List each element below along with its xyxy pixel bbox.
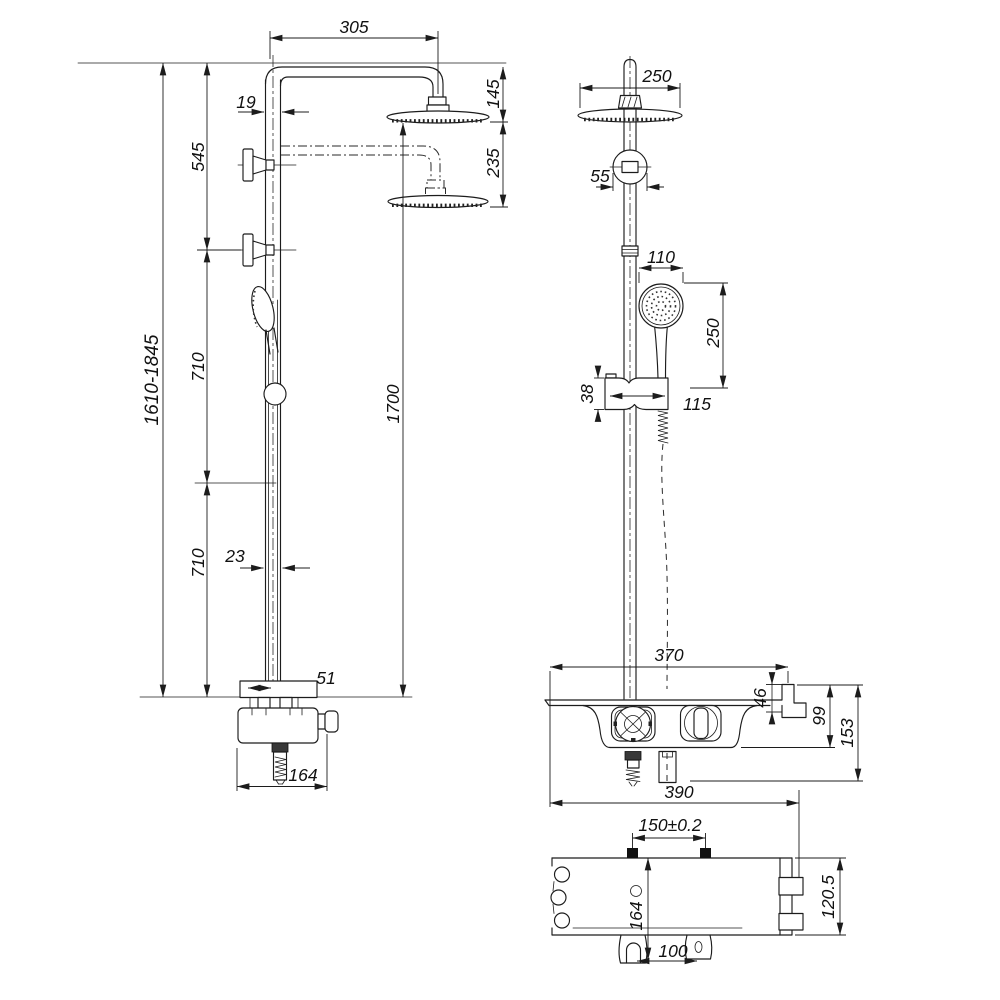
dim-body-height-label: 99 [809, 706, 829, 726]
dim-overall-width-label: 390 [664, 782, 693, 802]
overhead-arm-lower [281, 146, 488, 208]
dim-hook-height-label: 46 [750, 688, 770, 708]
valve-front-view: 370 46 99 153 390 [545, 645, 863, 877]
dim-slider-height-label: 38 [577, 384, 597, 404]
temperature-knob [612, 707, 656, 742]
dim-spout-offset-label: 51 [316, 668, 335, 688]
dim-mid-segment-label: 710 [188, 352, 208, 381]
mount-clip-right [700, 848, 711, 858]
clip-rail-edge [551, 858, 570, 935]
dim-arm-reach-label: 305 [339, 17, 368, 37]
dim-height-range-label: 1610-1845 [142, 334, 163, 425]
shower-system-technical-drawing: 305 19 545 1610-1845 145 235 710 710 23 [0, 0, 1000, 1000]
pipe-joint [622, 246, 638, 256]
dim-overhead-dia-label: 250 [641, 66, 671, 86]
side-view-dimensions: 305 19 545 1610-1845 145 235 710 710 23 [142, 17, 508, 791]
hinge-tab-lower [779, 914, 803, 931]
riser-pipe-side [266, 55, 281, 692]
wall-hook-bracket [782, 685, 806, 718]
dim-lower-pipe-label: 23 [224, 546, 245, 566]
wall-escutcheon [610, 150, 651, 184]
front-view: 250 55 110 250 38 115 [577, 56, 728, 699]
valve-bottom-view: 150±0.2 120.5 164 100 [551, 815, 846, 963]
dim-total-height-label: 153 [837, 718, 857, 747]
hinge-tab-upper [779, 878, 803, 896]
handshower-front [639, 284, 683, 388]
dim-bracket-span-label: 545 [188, 142, 208, 171]
wall-bracket-lower [238, 234, 296, 266]
spout-collar-front [625, 752, 641, 761]
bottom-view-dimensions: 150±0.2 120.5 164 100 [626, 815, 846, 961]
dim-upper-pipe-label: 19 [236, 92, 256, 112]
mount-clip-left [627, 848, 638, 858]
dim-mount-spacing-label: 150±0.2 [638, 815, 701, 835]
pilot-hole [631, 886, 642, 897]
dim-valve-width-label: 370 [654, 645, 683, 665]
slider-tab [606, 374, 616, 378]
dim-lower-segment-label: 710 [188, 548, 208, 577]
side-view: 305 19 545 1610-1845 145 235 710 710 23 [78, 17, 508, 791]
dim-handshower-dia-label: 110 [647, 247, 675, 267]
dim-overall-depth-label: 120.5 [818, 875, 838, 919]
side-handle-knob [325, 711, 338, 732]
dim-valve-depth-side-label: 164 [288, 765, 317, 785]
dim-head-drop-label: 145 [483, 79, 503, 108]
handshower-side [248, 284, 279, 354]
valve-front-dimensions: 370 46 99 153 390 [550, 645, 863, 877]
slider-bracket [605, 378, 668, 410]
flow-knob [681, 706, 722, 742]
hose-coil [658, 411, 668, 443]
spout-front [628, 760, 640, 768]
spout-collar [272, 743, 288, 752]
side-handle-stem [318, 714, 325, 729]
slider-ring-side [264, 383, 286, 405]
dim-handshower-drop-label: 250 [703, 318, 723, 348]
dim-slider-width-label: 115 [683, 394, 711, 414]
wall-bracket-upper [238, 149, 296, 181]
dim-depth-label: 164 [626, 901, 646, 930]
dim-outlet-spacing-label: 100 [658, 941, 687, 961]
dim-escutcheon-label: 55 [590, 166, 610, 186]
overhead-arm-upper [266, 67, 490, 123]
dim-head-spacing-label: 235 [483, 148, 503, 178]
dim-column-height-label: 1700 [383, 384, 403, 423]
